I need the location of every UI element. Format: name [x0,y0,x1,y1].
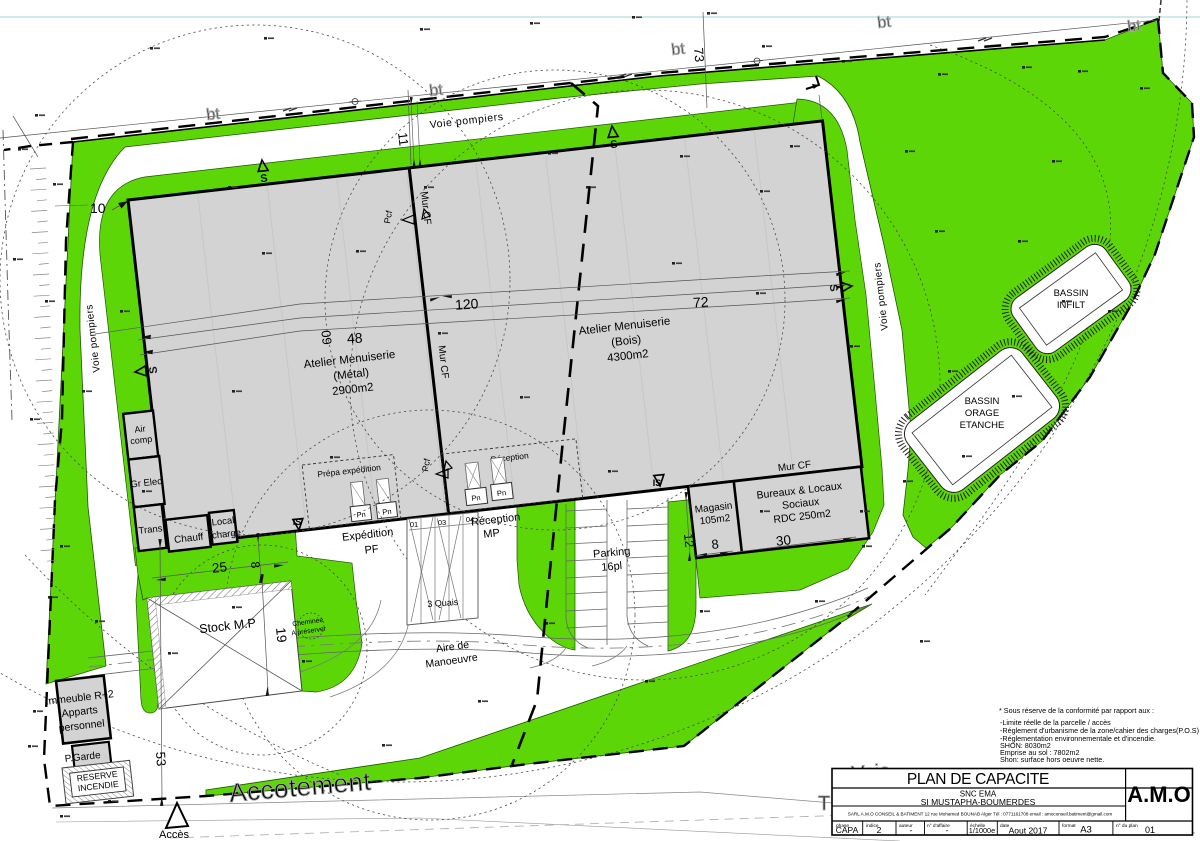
svg-text:03: 03 [438,518,446,527]
svg-text:Pn: Pn [382,507,392,517]
svg-text:bt: bt [877,14,893,32]
svg-text:72: 72 [692,294,709,311]
svg-text:120: 120 [455,295,480,312]
svg-text:bt: bt [671,41,687,59]
svg-text:SARL A.M.O CONSEIL & BATIMENT: SARL A.M.O CONSEIL & BATIMENT 12 rue Moh… [848,812,1113,817]
svg-text:-: - [910,825,913,835]
svg-text:2: 2 [877,825,882,835]
svg-text:bt: bt [429,82,445,100]
svg-text:Pn: Pn [356,510,366,520]
svg-text:* Sous réserve de la conformit: * Sous réserve de la conformité par rapp… [999,706,1154,715]
svg-text:BASSIN: BASSIN [1054,288,1089,299]
svg-text:25: 25 [211,559,228,576]
svg-text:1/1000e: 1/1000e [969,826,995,835]
svg-text:48: 48 [346,330,363,347]
svg-text:60: 60 [318,329,334,345]
svg-text:Aout 2017: Aout 2017 [1009,826,1048,836]
svg-text:IS: IS [293,517,302,527]
svg-text:01: 01 [1145,825,1155,835]
svg-text:S: S [260,173,269,186]
svg-text:IS: IS [653,478,662,488]
svg-text:-: - [946,825,949,835]
svg-text:Pn: Pn [471,493,481,503]
svg-text:format: format [1062,823,1076,829]
svg-text:Shon: surface hors oeuvre nett: Shon: surface hors oeuvre nette. [1000,755,1104,764]
svg-text:53: 53 [153,751,169,766]
svg-text:ORAGE: ORAGE [965,408,999,419]
svg-text:01: 01 [410,520,418,529]
svg-text:T: T [818,793,830,815]
svg-text:MP: MP [483,527,501,541]
svg-text:Air: Air [134,424,146,435]
svg-text:A3: A3 [1080,825,1092,836]
svg-text:A.M.O: A.M.O [1127,782,1191,807]
svg-text:S: S [610,139,619,152]
svg-text:10: 10 [90,200,106,216]
svg-text:Accès: Accès [159,829,189,841]
svg-text:BASSIN: BASSIN [965,396,1000,407]
svg-text:bt: bt [206,106,222,124]
svg-text:PLAN DE CAPACITE: PLAN DE CAPACITE [907,771,1049,788]
svg-text:SI MUSTAPHA-BOUMERDES: SI MUSTAPHA-BOUMERDES [921,797,1036,807]
svg-text:11: 11 [395,132,412,147]
svg-text:n° du plan: n° du plan [1116,823,1138,829]
svg-text:19: 19 [273,627,289,644]
svg-text:CAPA: CAPA [836,825,859,835]
svg-text:PF: PF [364,543,380,557]
svg-text:bt: bt [1127,18,1143,36]
svg-text:ETANCHE: ETANCHE [960,420,1005,431]
svg-text:S: S [148,366,161,375]
svg-text:Pn: Pn [497,488,507,498]
svg-text:16pl: 16pl [601,560,623,574]
svg-text:S: S [827,284,840,293]
